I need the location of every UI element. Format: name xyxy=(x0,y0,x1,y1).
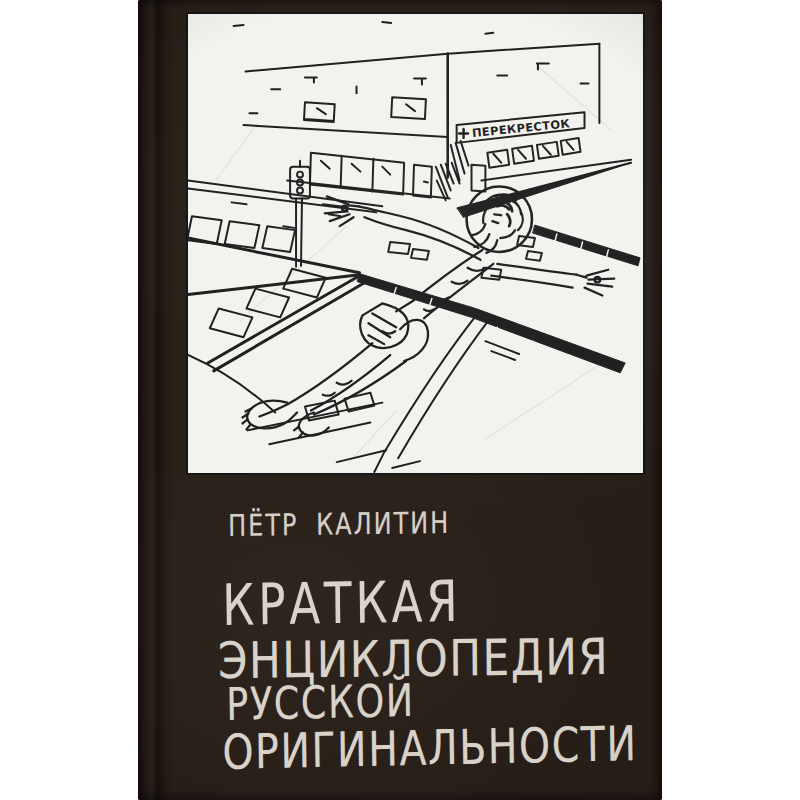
curb xyxy=(188,181,382,213)
clover-logo-icon xyxy=(459,129,468,138)
title-line-4: ОРИГИНАЛЬНОСТИ xyxy=(222,715,638,780)
title-line-1: КРАТКАЯ xyxy=(222,568,462,638)
hatching xyxy=(451,141,469,184)
window xyxy=(537,142,559,159)
crosswalk-tiles xyxy=(188,216,295,252)
window xyxy=(487,150,509,168)
window xyxy=(512,146,534,164)
left-arm xyxy=(323,196,481,259)
window xyxy=(304,102,335,122)
hatching xyxy=(436,164,454,201)
curb xyxy=(188,355,275,412)
illustration-panel: ПЕРЕКРЕСТОК xyxy=(186,12,645,475)
traffic-light xyxy=(290,161,310,267)
curb-band-upper-right xyxy=(533,225,640,266)
sign-text: ПЕРЕКРЕСТОК xyxy=(471,116,571,140)
curb xyxy=(374,311,489,472)
book-cover: ПЕРЕКРЕСТОК xyxy=(138,0,662,800)
spine-hinge-groove xyxy=(152,0,172,800)
curb-tiles xyxy=(388,236,542,280)
right-arm xyxy=(491,264,614,296)
window xyxy=(561,138,581,155)
crossroads-crucifixion-illustration: ПЕРЕКРЕСТОК xyxy=(188,14,643,473)
window xyxy=(391,97,426,119)
door xyxy=(472,165,486,192)
photo-background: ПЕРЕКРЕСТОК xyxy=(0,0,800,800)
road-intersection xyxy=(188,160,640,472)
leg-shading xyxy=(323,331,395,395)
door xyxy=(413,165,432,198)
author-name: ПЁТР КАЛИТИН xyxy=(228,505,450,543)
curb xyxy=(188,238,359,273)
perekrestok-sign: ПЕРЕКРЕСТОК xyxy=(457,112,585,143)
loincloth xyxy=(360,303,408,348)
sky-ticks xyxy=(234,22,494,34)
road-vanishing-right xyxy=(458,160,631,217)
